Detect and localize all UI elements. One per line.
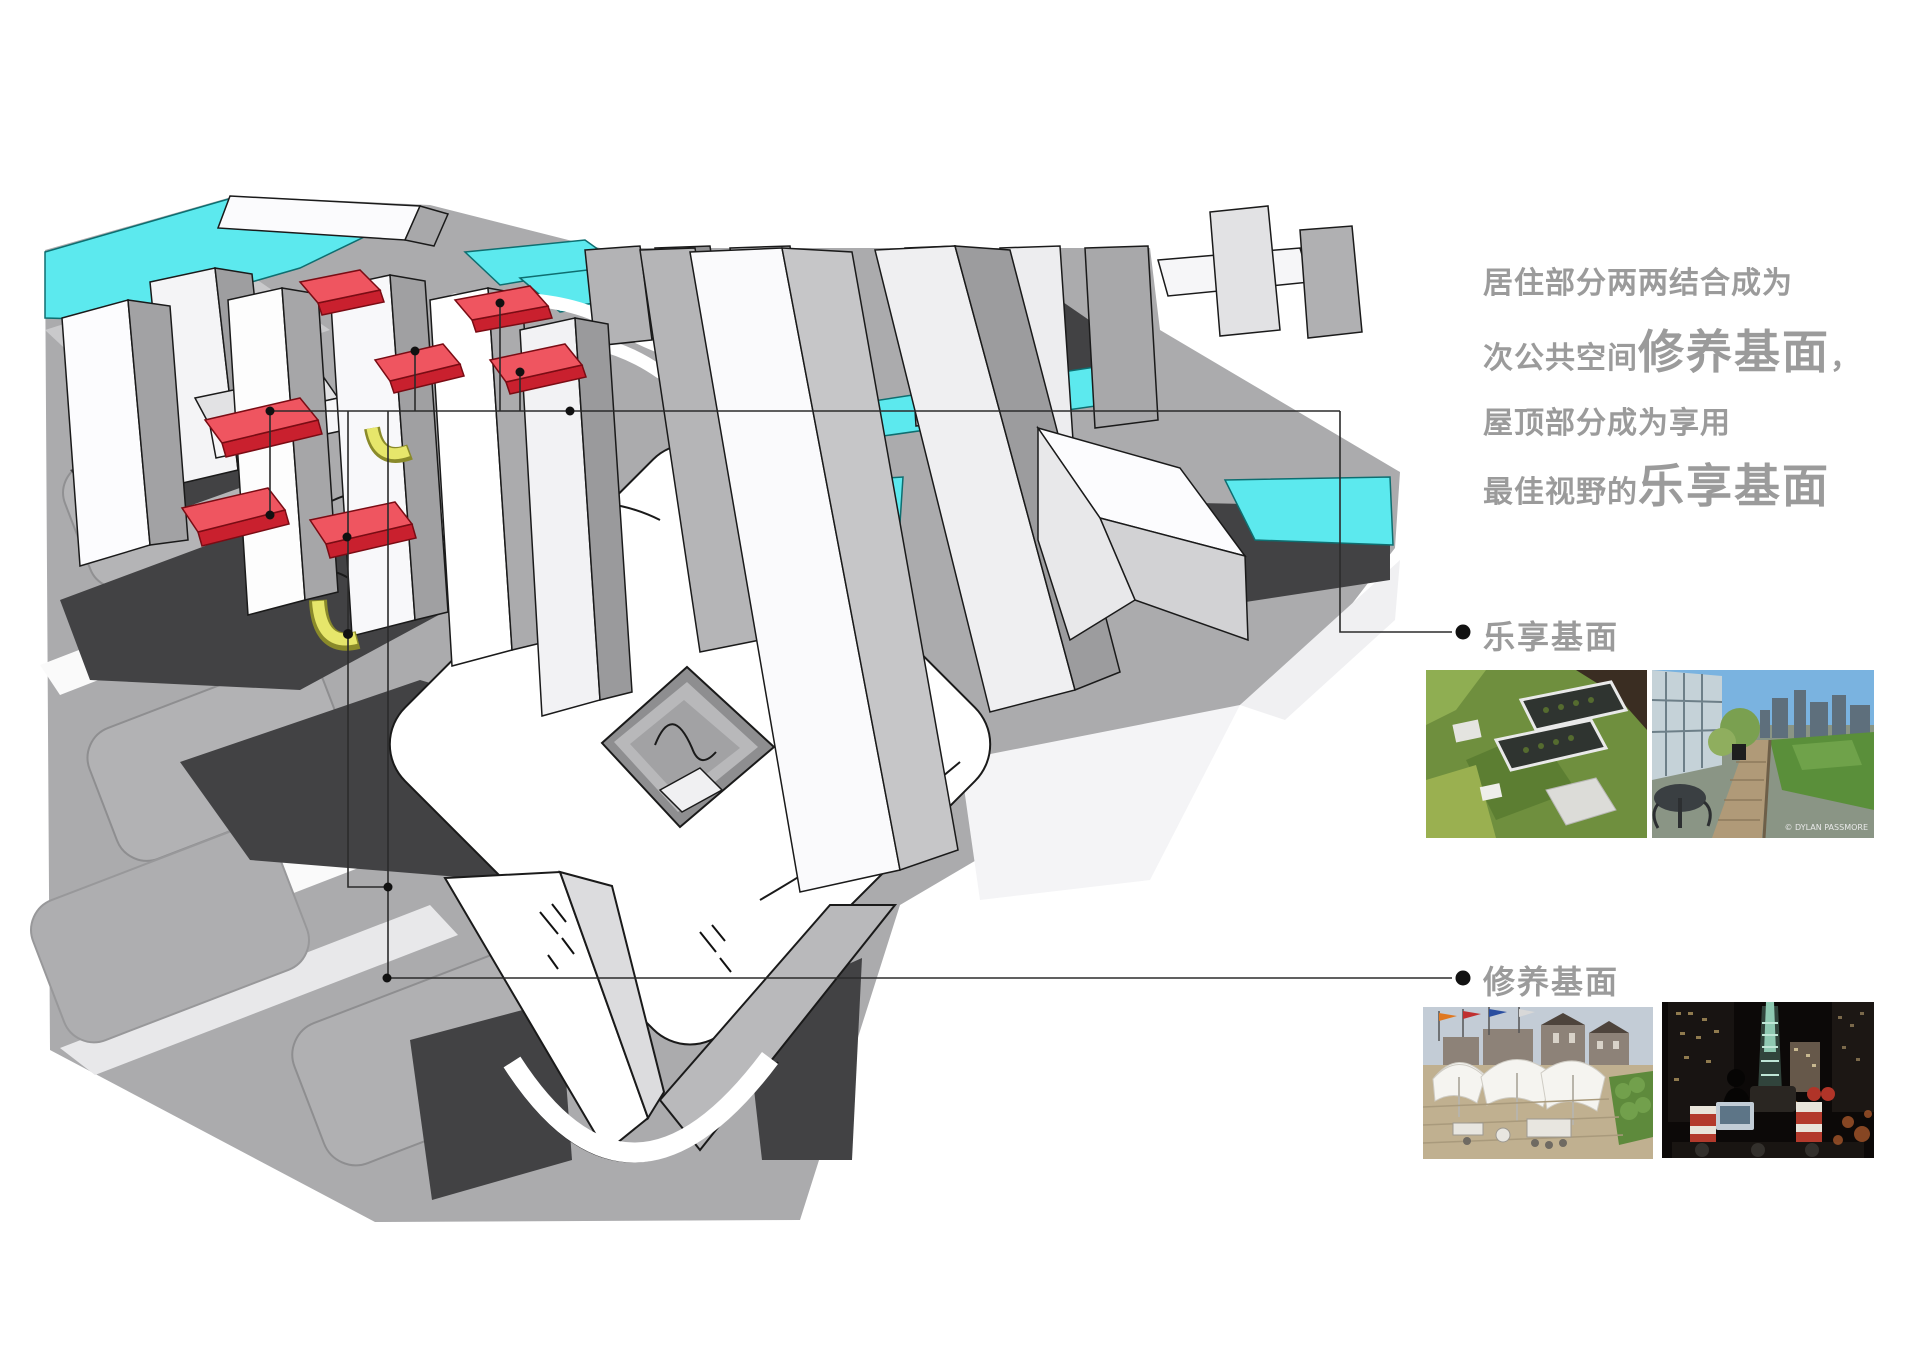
photo-rooftop-terrace-skyline: © DYLAN PASSMORE — [1652, 670, 1874, 838]
desc-line4-prefix: 最佳视野的 — [1483, 467, 1638, 511]
label-leisure-surface: 乐享基面 — [1483, 612, 1619, 658]
photo-terrace-canopies — [1423, 1007, 1653, 1159]
desc-line2-emphasis: 修养基面 — [1638, 316, 1830, 382]
recuperation-bullet — [1456, 971, 1471, 986]
photo-watermark: © DYLAN PASSMORE — [1784, 823, 1868, 832]
desc-line2-suffix: ， — [1830, 333, 1861, 377]
photo-night-rooftop-dj — [1662, 1002, 1874, 1158]
desc-line3: 屋顶部分成为享用 — [1483, 398, 1731, 442]
desc-line4-emphasis: 乐享基面 — [1638, 450, 1830, 516]
leisure-bullet — [1456, 625, 1471, 640]
photo-green-roof-aerial — [1426, 670, 1647, 838]
presentation-slide: 居住部分两两结合成为 次公共空间 修养基面 ， 屋顶部分成为享用 最佳视野的 乐… — [0, 0, 1920, 1357]
desc-line1: 居住部分两两结合成为 — [1483, 258, 1793, 302]
label-recuperation-surface: 修养基面 — [1483, 957, 1619, 1003]
desc-line2-prefix: 次公共空间 — [1483, 333, 1638, 377]
description-block: 居住部分两两结合成为 次公共空间 修养基面 ， 屋顶部分成为享用 最佳视野的 乐… — [1483, 258, 1913, 516]
